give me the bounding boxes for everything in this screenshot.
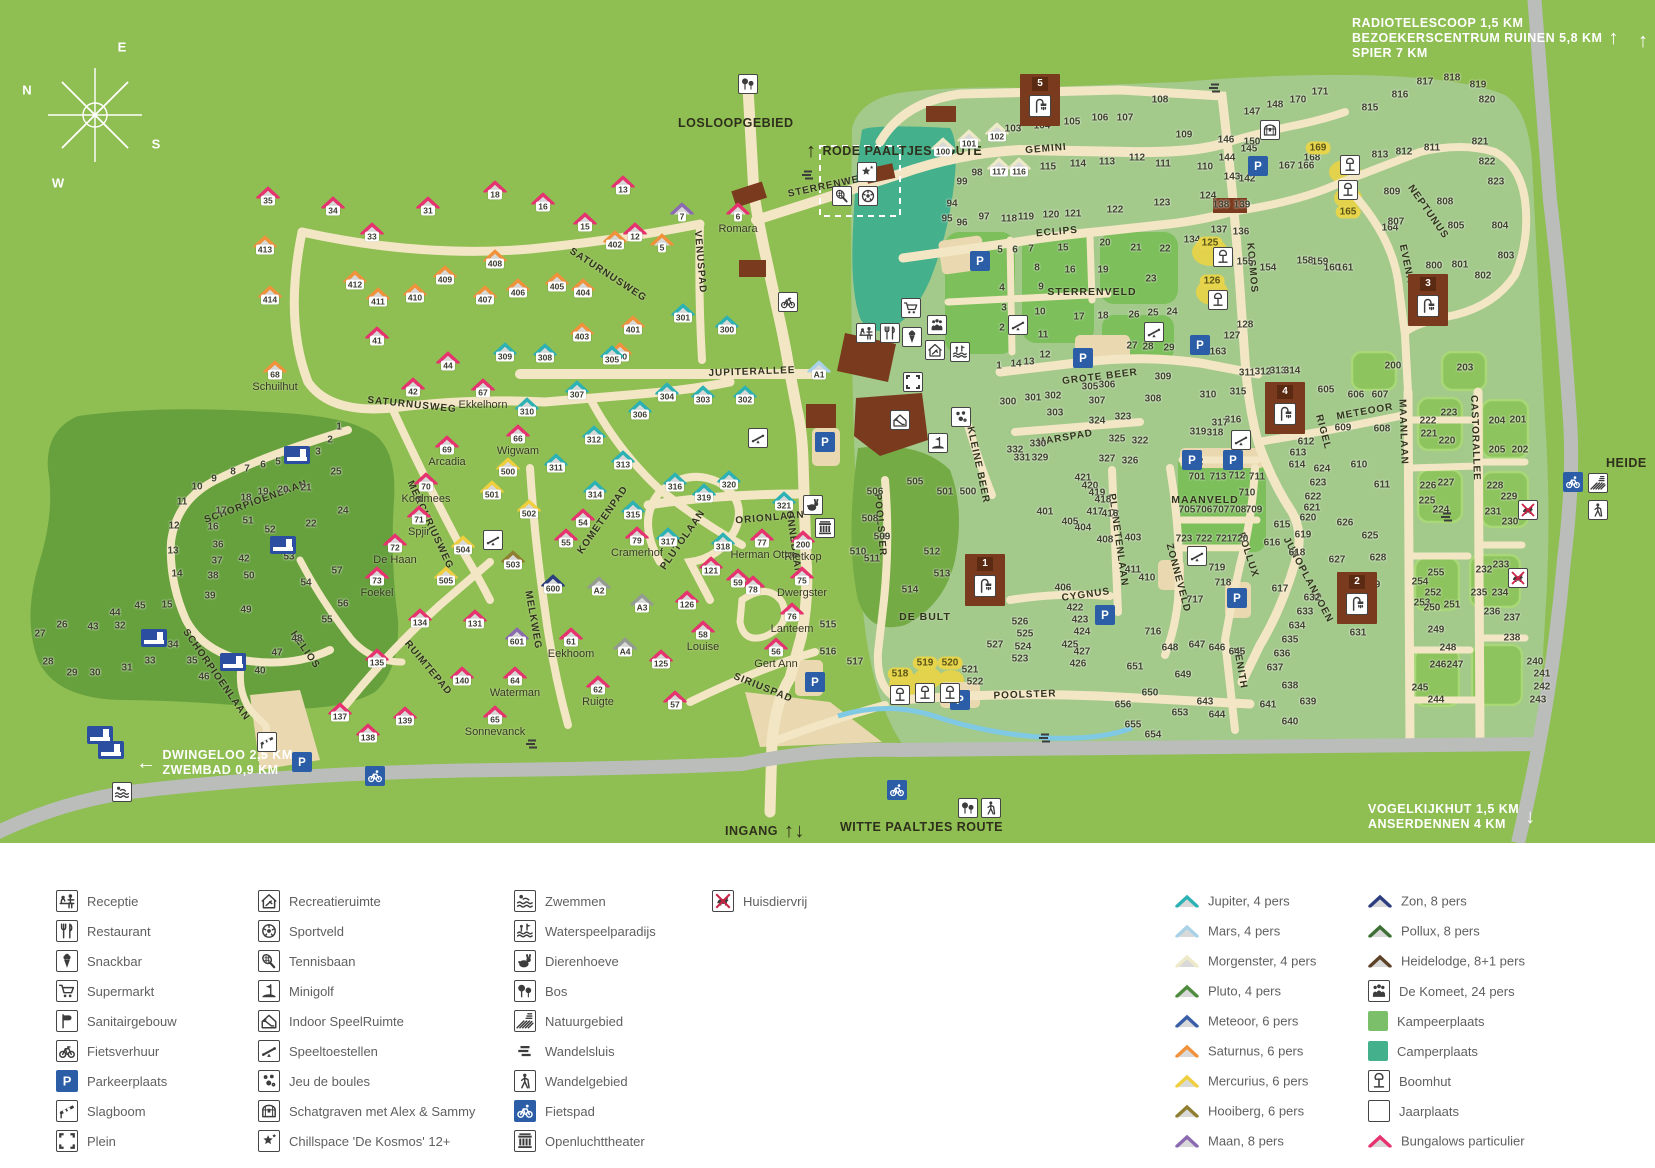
tennisbaan-icon [832, 186, 852, 206]
wandelgebied-icon [514, 1070, 536, 1092]
plot-number: 138 [1213, 200, 1230, 211]
plot-number: 616 [1264, 538, 1281, 549]
house-number: 100 [934, 147, 952, 157]
legend-item-speeltoestellen: Speeltoestellen [258, 1040, 378, 1062]
house-131: 131 [463, 610, 487, 629]
house-410: 410 [403, 284, 427, 303]
plot-number: 97 [978, 212, 989, 223]
legend-item-fietspad: Fietspad [514, 1100, 595, 1122]
house-number: 140 [453, 676, 471, 686]
plot-number: 47 [271, 648, 282, 659]
house-number: 77 [755, 538, 768, 548]
house-number: 56 [769, 647, 782, 657]
fietspad-icon [887, 780, 907, 800]
house-300: 300 [715, 316, 739, 335]
plot-number: 303 [1047, 408, 1064, 419]
house-number: 72 [388, 543, 401, 553]
legend-label: Natuurgebied [545, 1014, 623, 1029]
sportveld-icon [858, 186, 878, 206]
plot-number: 803 [1498, 251, 1515, 262]
plot-number: 39 [204, 591, 215, 602]
legend-label: Zon, 8 pers [1401, 894, 1467, 909]
house-number: 68 [268, 370, 281, 380]
legend-item-parkeerplaats: PParkeerplaats [56, 1070, 167, 1092]
house-312: 312 [582, 426, 606, 445]
jaarplaats-icon [1368, 1100, 1390, 1122]
boomhut-icon [890, 685, 910, 705]
plot-number: 51 [242, 516, 253, 527]
plot-number: 109 [1176, 130, 1193, 141]
road-label-poolster: POOLSTER [993, 688, 1056, 701]
plot-number: 809 [1384, 187, 1401, 198]
plot-number: 641 [1260, 700, 1277, 711]
plot-number: 118 [1001, 214, 1017, 225]
fietsverhuur-icon [778, 292, 798, 312]
plot-number: 37 [211, 556, 222, 567]
house-number: 500 [499, 467, 517, 477]
legend-label: Camperplaats [1397, 1044, 1478, 1059]
plot-number: 35 [186, 656, 197, 667]
legend-item-minigolf: Minigolf [258, 980, 334, 1002]
plot-number: 329 [1032, 453, 1049, 464]
wandelsluis-icon [798, 165, 818, 185]
plot-number: 811 [1424, 143, 1440, 154]
jaarplaats-icon [87, 726, 113, 744]
plot-number: 322 [1132, 436, 1149, 447]
house-310: 310 [515, 398, 539, 417]
house-504: 504 [451, 536, 475, 555]
plot-number: 713 [1210, 472, 1227, 483]
sanitair-shower-icon [1346, 593, 1368, 615]
plot-number: 54 [300, 578, 311, 589]
area-swatch [1368, 1011, 1388, 1031]
compass-letter-n: N [22, 83, 31, 98]
house-number: 502 [520, 509, 538, 519]
plot-number: 96 [956, 218, 967, 229]
place-name-spjir: Spjir [408, 526, 430, 538]
house-59: 59 [726, 569, 750, 588]
plot-number: 31 [121, 663, 132, 674]
parkeerplaats-icon: P [56, 1070, 78, 1092]
plot-number: 202 [1512, 445, 1529, 456]
house-number: 70 [419, 482, 432, 492]
house-500: 500 [496, 458, 520, 477]
house-304: 304 [655, 383, 679, 402]
plot-number: 501 [937, 487, 954, 498]
legend-item-fietsverhuur: Fietsverhuur [56, 1040, 159, 1062]
legend-item-schatgraven: Schatgraven met Alex & Sammy [258, 1100, 475, 1122]
roof-swatch-icon [1175, 925, 1199, 938]
plot-number: 50 [243, 571, 254, 582]
plot-number: 523 [1012, 654, 1029, 665]
place-name-cramerhof: Cramerhof [611, 547, 663, 559]
wandelsluis-icon [1205, 78, 1225, 98]
house-number: 410 [406, 293, 424, 303]
plot-number: 721 [1216, 534, 1233, 545]
plot-number: 240 [1527, 657, 1544, 668]
sign-vogelkijkhut: VOGELKIJKHUT 1,5 KMANSERDENNEN 4 KM↓ [1368, 802, 1542, 832]
plot-number: 247 [1447, 660, 1464, 671]
house-600: 600 [541, 575, 565, 594]
plot-number: 236 [1484, 607, 1501, 618]
compass-letter-w: W [52, 176, 64, 191]
house-number: 42 [406, 387, 419, 397]
sanitair-number: 1 [977, 557, 993, 571]
place-name-foekel: Foekel [360, 587, 393, 599]
plot-number: 613 [1290, 448, 1307, 459]
plot-number: 9 [211, 474, 217, 485]
house-55: 55 [554, 529, 578, 548]
plot-number: 514 [902, 585, 919, 596]
park-map: RADIOTELESCOOP 1,5 KMBEZOEKERSCENTRUM RU… [0, 0, 1655, 843]
house-number: 307 [568, 390, 586, 400]
plot-number: 24 [337, 506, 348, 517]
plein-icon [56, 1130, 78, 1152]
legend-item-plein: Plein [56, 1130, 116, 1152]
plot-number: 128 [1237, 320, 1254, 331]
place-name-eekhoom: Eekhoom [548, 648, 594, 660]
slagboom-icon [257, 732, 277, 752]
house-number: 412 [346, 280, 364, 290]
plot-number: 171 [1312, 87, 1329, 98]
plot-number: 94 [946, 199, 957, 210]
legend-item-openluchttheater: Openluchttheater [514, 1130, 645, 1152]
plot-number: 11 [177, 497, 188, 508]
plot-number: 655 [1125, 720, 1142, 731]
house-number: 319 [695, 493, 713, 503]
house-412: 412 [343, 271, 367, 290]
house-number: 79 [630, 536, 643, 546]
svg-text:P: P [821, 437, 829, 449]
plot-number: 250 [1424, 603, 1441, 614]
house-number: 309 [496, 352, 514, 362]
plot-number: 802 [1475, 271, 1492, 282]
legend-item-pluto-4-pers: Pluto, 4 pers [1175, 984, 1281, 999]
house-409: 409 [433, 266, 457, 285]
house-number: 301 [674, 313, 692, 323]
plot-number: 808 [1437, 197, 1454, 208]
plot-number: 517 [847, 657, 864, 668]
dierenhoeve-icon [803, 495, 823, 515]
house-number: 6 [734, 212, 743, 222]
house-313: 313 [611, 451, 635, 470]
plot-number: 606 [1348, 390, 1365, 401]
house-307: 307 [565, 381, 589, 400]
house-number: 300 [718, 325, 736, 335]
house-68: 68 [263, 361, 287, 380]
parkeerplaats-icon: P [292, 752, 312, 772]
plot-number: 25 [1147, 308, 1158, 319]
road-label-eclips: ECLIPS [1036, 225, 1079, 240]
plot-number: 628 [1370, 553, 1387, 564]
house-321: 321 [772, 492, 796, 511]
road-label-castorallee: CASTORALLEE [1468, 395, 1482, 481]
boomhut-number: 520 [938, 657, 963, 670]
plot-number: 315 [1230, 387, 1247, 398]
plot-number: 406 [1055, 583, 1072, 594]
house-320: 320 [717, 471, 741, 490]
plot-number: 23 [1145, 274, 1156, 285]
plot-number: 426 [1070, 659, 1087, 670]
sanitairgebouw-2: 2 [1337, 572, 1377, 624]
plot-number: 617 [1272, 584, 1289, 595]
parkeerplaats-icon: P [1190, 335, 1210, 355]
svg-text:P: P [1233, 593, 1241, 605]
plot-number: 423 [1072, 615, 1089, 626]
plot-number: 605 [1318, 385, 1335, 396]
plot-number: 401 [1037, 507, 1054, 518]
plot-number: 19 [257, 487, 268, 498]
sign-dwingeloo: ←DWINGELOO 2,5 KMZWEMBAD 0,9 KM [130, 748, 293, 778]
legend-label: Bungalows particulier [1401, 1134, 1525, 1149]
plot-number: 615 [1274, 520, 1291, 531]
house-number: 64 [508, 676, 521, 686]
svg-text:P: P [1101, 610, 1109, 622]
plot-number: 639 [1300, 697, 1317, 708]
house-number: 57 [668, 700, 681, 710]
legend-label: Kampeerplaats [1397, 1014, 1484, 1029]
plot-number: 139 [1234, 200, 1251, 211]
map-features: RADIOTELESCOOP 1,5 KMBEZOEKERSCENTRUM RU… [0, 0, 1655, 843]
plot-number: 310 [1200, 390, 1217, 401]
plot-number: 612 [1298, 437, 1315, 448]
place-name-koolmees: Koolmees [402, 493, 451, 505]
plot-number: 29 [1163, 343, 1174, 354]
house-34: 34 [321, 197, 345, 216]
legend-label: Receptie [87, 894, 138, 909]
plot-number: 147 [1244, 107, 1261, 118]
house-number: 121 [702, 566, 720, 576]
plot-number: 15 [161, 600, 172, 611]
sanitair-number: 2 [1349, 575, 1365, 589]
house-number: 317 [659, 537, 677, 547]
sign-arrow-radiotelescoop: ↑ [1608, 27, 1619, 49]
legend-item-receptie: Receptie [56, 890, 138, 912]
house-number: 34 [326, 206, 339, 216]
house-number: 303 [694, 395, 712, 405]
openluchttheater-icon [815, 518, 835, 538]
house-62: 62 [586, 676, 610, 695]
sign-witte-paaltjes-route: WITTE PAALTJES ROUTE [840, 820, 1003, 835]
plot-number: 203 [1457, 363, 1474, 374]
plot-number: 638 [1282, 681, 1299, 692]
plot-number: 8 [1034, 263, 1040, 274]
boomhut-number: 126 [1200, 275, 1225, 288]
legend-label: Sanitairgebouw [87, 1014, 177, 1029]
chillspace-icon [258, 1130, 280, 1152]
roof-swatch-icon [1175, 955, 1199, 968]
plot-number: 7 [1028, 244, 1034, 255]
plot-number: 245 [1412, 683, 1429, 694]
plot-number: 403 [1125, 533, 1142, 544]
road-label-jupiterallee: JUPITERALLEE [708, 365, 795, 379]
de-komeet-icon [1368, 980, 1390, 1002]
wandelgebied-icon [981, 798, 1001, 818]
plot-number: 20 [277, 485, 288, 496]
house-number: 33 [365, 232, 378, 242]
house-number: 406 [509, 288, 527, 298]
wandelsluis-icon [1035, 728, 1055, 748]
house-number: 405 [548, 282, 566, 292]
plot-number: 620 [1300, 513, 1317, 524]
plot-number: 18 [1097, 311, 1108, 322]
plot-number: 301 [1025, 393, 1042, 404]
plot-number: 608 [1374, 424, 1391, 435]
house-number: 125 [652, 659, 670, 669]
legend-label: Zwemmen [545, 894, 606, 909]
plot-number: 48 [291, 634, 302, 645]
house-314: 314 [583, 481, 607, 500]
house-number: 35 [261, 196, 274, 206]
house-402: 402 [603, 231, 627, 250]
plot-number: 609 [1335, 423, 1352, 434]
legend-label: Speeltoestellen [289, 1044, 378, 1059]
house-411: 411 [366, 288, 390, 307]
house-number: 7 [678, 212, 687, 222]
house-number: 401 [624, 325, 642, 335]
house-number: 320 [720, 480, 738, 490]
house-number: 414 [261, 295, 279, 305]
roof-swatch-icon [1368, 955, 1392, 968]
plot-number: 722 [1196, 534, 1213, 545]
house-140: 140 [450, 667, 474, 686]
boomhut-icon [1340, 155, 1360, 175]
wandelsluis-icon [522, 734, 542, 754]
jeu-de-boules-icon [951, 407, 971, 427]
plot-number: 525 [1017, 629, 1034, 640]
plot-number: 416 [1102, 509, 1119, 520]
house-305: 305 [600, 346, 624, 365]
house-number: 137 [331, 712, 349, 722]
house-125: 125 [649, 650, 673, 669]
house-302: 302 [733, 386, 757, 405]
legend-item-boomhut: Boomhut [1368, 1070, 1451, 1092]
sanitairgebouw-icon [56, 1010, 78, 1032]
plot-number: 805 [1448, 221, 1465, 232]
sign-heide: HEIDE [1606, 456, 1647, 471]
plot-number: 634 [1289, 621, 1306, 632]
house-number: 318 [714, 542, 732, 552]
house-319: 319 [692, 484, 716, 503]
legend-label: Jeu de boules [289, 1074, 370, 1089]
legend-item-bungalows-particulier: Bungalows particulier [1368, 1134, 1525, 1149]
house-number: 501 [483, 490, 501, 500]
house-408: 408 [483, 250, 507, 269]
speeltoestellen-icon [1008, 315, 1028, 335]
plot-number: 12 [168, 521, 179, 532]
plot-number: 235 [1471, 588, 1488, 599]
house-134: 134 [408, 609, 432, 628]
plot-number: 422 [1067, 603, 1084, 614]
house-number: 311 [547, 463, 565, 473]
house-number: 321 [775, 501, 793, 511]
house-number: 65 [488, 715, 501, 725]
house-number: 58 [696, 630, 709, 640]
plot-number: 623 [1310, 478, 1327, 489]
place-name-ekkelhorn: Ekkelhorn [459, 399, 508, 411]
jeu-de-boules-icon [258, 1070, 280, 1092]
house-number: 402 [606, 240, 624, 250]
fietspad-icon [514, 1100, 536, 1122]
plot-number: 2 [999, 323, 1005, 334]
legend-item-waterspeelparadijs: Waterspeelparadijs [514, 920, 656, 942]
slagboom-icon [56, 1100, 78, 1122]
house-number: 138 [359, 733, 377, 743]
road-label-gemini: GEMINI [1025, 142, 1067, 157]
jaarplaats-icon [220, 653, 246, 671]
plot-number: 242 [1534, 682, 1551, 693]
house-406: 406 [506, 279, 530, 298]
plot-number: 19 [1097, 265, 1108, 276]
legend-label: Sportveld [289, 924, 344, 939]
park-map-screenshot: RADIOTELESCOOP 1,5 KMBEZOEKERSCENTRUM RU… [0, 0, 1655, 1168]
legend-label: Fietsverhuur [87, 1044, 159, 1059]
plot-number: 823 [1488, 177, 1505, 188]
legend-label: Restaurant [87, 924, 151, 939]
roof-swatch-icon [1175, 895, 1199, 908]
svg-text:P: P [1188, 455, 1196, 467]
legend-label: Jupiter, 4 pers [1208, 894, 1290, 909]
natuurgebied-icon [1588, 473, 1608, 493]
house-number: 15 [578, 222, 591, 232]
house-number: 102 [988, 132, 1006, 142]
speeltoestellen-icon [258, 1040, 280, 1062]
house-number: 5 [658, 243, 667, 253]
house-number: 135 [368, 658, 386, 668]
plot-number: 6 [1012, 245, 1018, 256]
parkeerplaats-icon: P [1073, 348, 1093, 368]
legend-item-jeu-de-boules: Jeu de boules [258, 1070, 370, 1092]
house-18: 18 [483, 181, 507, 200]
plot-number: 2 [327, 435, 333, 446]
sanitairgebouw-3: 3 [1408, 274, 1448, 326]
plot-number: 106 [1092, 113, 1109, 124]
house-number: 13 [616, 185, 629, 195]
sanitairgebouw-4: 4 [1265, 382, 1305, 434]
svg-text:P: P [1079, 353, 1087, 365]
legend-label: Indoor SpeelRuimte [289, 1014, 404, 1029]
sign-radiotelescoop: RADIOTELESCOOP 1,5 KMBEZOEKERSCENTRUM RU… [1352, 16, 1625, 61]
plot-number: 95 [941, 214, 952, 225]
legend-item-restaurant: Restaurant [56, 920, 151, 942]
wandelgebied-icon [1588, 500, 1608, 520]
house-number: 305 [603, 355, 621, 365]
plot-number: 227 [1438, 478, 1455, 489]
legend-item-sanitairgebouw: Sanitairgebouw [56, 1010, 177, 1032]
legend-label: Snackbar [87, 954, 142, 969]
schatgraven-icon [258, 1100, 280, 1122]
plot-number: 812 [1396, 147, 1413, 158]
plot-number: 14 [171, 569, 182, 580]
sanitairgebouw-5: 5 [1020, 74, 1060, 126]
plot-number: 707 [1213, 505, 1230, 516]
plot-number: 221 [1421, 429, 1438, 440]
plot-number: 636 [1274, 649, 1291, 660]
plot-number: 820 [1479, 95, 1496, 106]
plot-number: 526 [1012, 617, 1029, 628]
place-name-louise: Louise [687, 641, 719, 653]
snackbar-icon [902, 327, 922, 347]
plot-number: 512 [924, 547, 941, 558]
jaarplaats-icon [141, 629, 167, 647]
house-number: 134 [411, 618, 429, 628]
plot-number: 9 [1038, 282, 1044, 293]
legend-label: Tennisbaan [289, 954, 356, 969]
bos-icon [738, 74, 758, 94]
house-41: 41 [365, 327, 389, 346]
house-A3: A3 [630, 594, 654, 613]
openluchttheater-icon [514, 1130, 536, 1152]
